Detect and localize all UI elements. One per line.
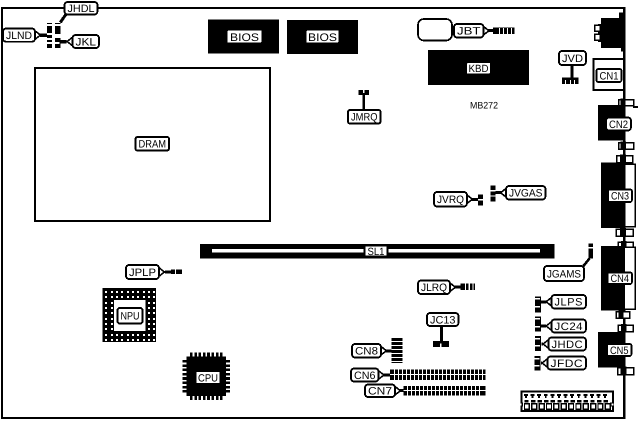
svg-text:JVD: JVD	[562, 53, 583, 65]
svg-text:SL1: SL1	[368, 246, 385, 258]
svg-text:NPU: NPU	[121, 311, 140, 323]
svg-text:JC13: JC13	[430, 314, 456, 326]
svg-text:JHDL: JHDL	[68, 3, 95, 15]
svg-text:BIOS: BIOS	[308, 32, 337, 44]
svg-text:CN4: CN4	[611, 273, 630, 285]
svg-text:CN7: CN7	[368, 386, 392, 398]
svg-text:JC24: JC24	[555, 321, 584, 333]
svg-text:JHDC: JHDC	[552, 339, 584, 351]
svg-text:JMRQ: JMRQ	[351, 112, 378, 124]
svg-text:CPU: CPU	[198, 373, 218, 385]
svg-text:CN2: CN2	[609, 119, 628, 131]
svg-text:JLND: JLND	[6, 30, 32, 42]
svg-text:CN6: CN6	[354, 370, 376, 382]
svg-text:KBD: KBD	[469, 63, 489, 75]
svg-text:JGAMS: JGAMS	[547, 268, 581, 280]
svg-text:BIOS: BIOS	[230, 32, 259, 44]
svg-text:CN8: CN8	[355, 346, 378, 358]
svg-text:CN1: CN1	[600, 70, 619, 82]
svg-text:JLPS: JLPS	[555, 297, 584, 309]
svg-text:CN3: CN3	[611, 191, 629, 203]
svg-text:MB272: MB272	[470, 101, 498, 112]
svg-text:JBT: JBT	[457, 26, 481, 38]
svg-text:JFDC: JFDC	[551, 358, 584, 370]
svg-text:JVRQ: JVRQ	[437, 194, 464, 206]
svg-text:JPLP: JPLP	[129, 267, 156, 279]
svg-text:JLRQ: JLRQ	[421, 282, 447, 294]
svg-text:DRAM: DRAM	[139, 139, 167, 151]
svg-text:JVGAS: JVGAS	[509, 188, 543, 200]
svg-text:CN5: CN5	[610, 345, 629, 357]
svg-text:JKL: JKL	[76, 36, 97, 48]
